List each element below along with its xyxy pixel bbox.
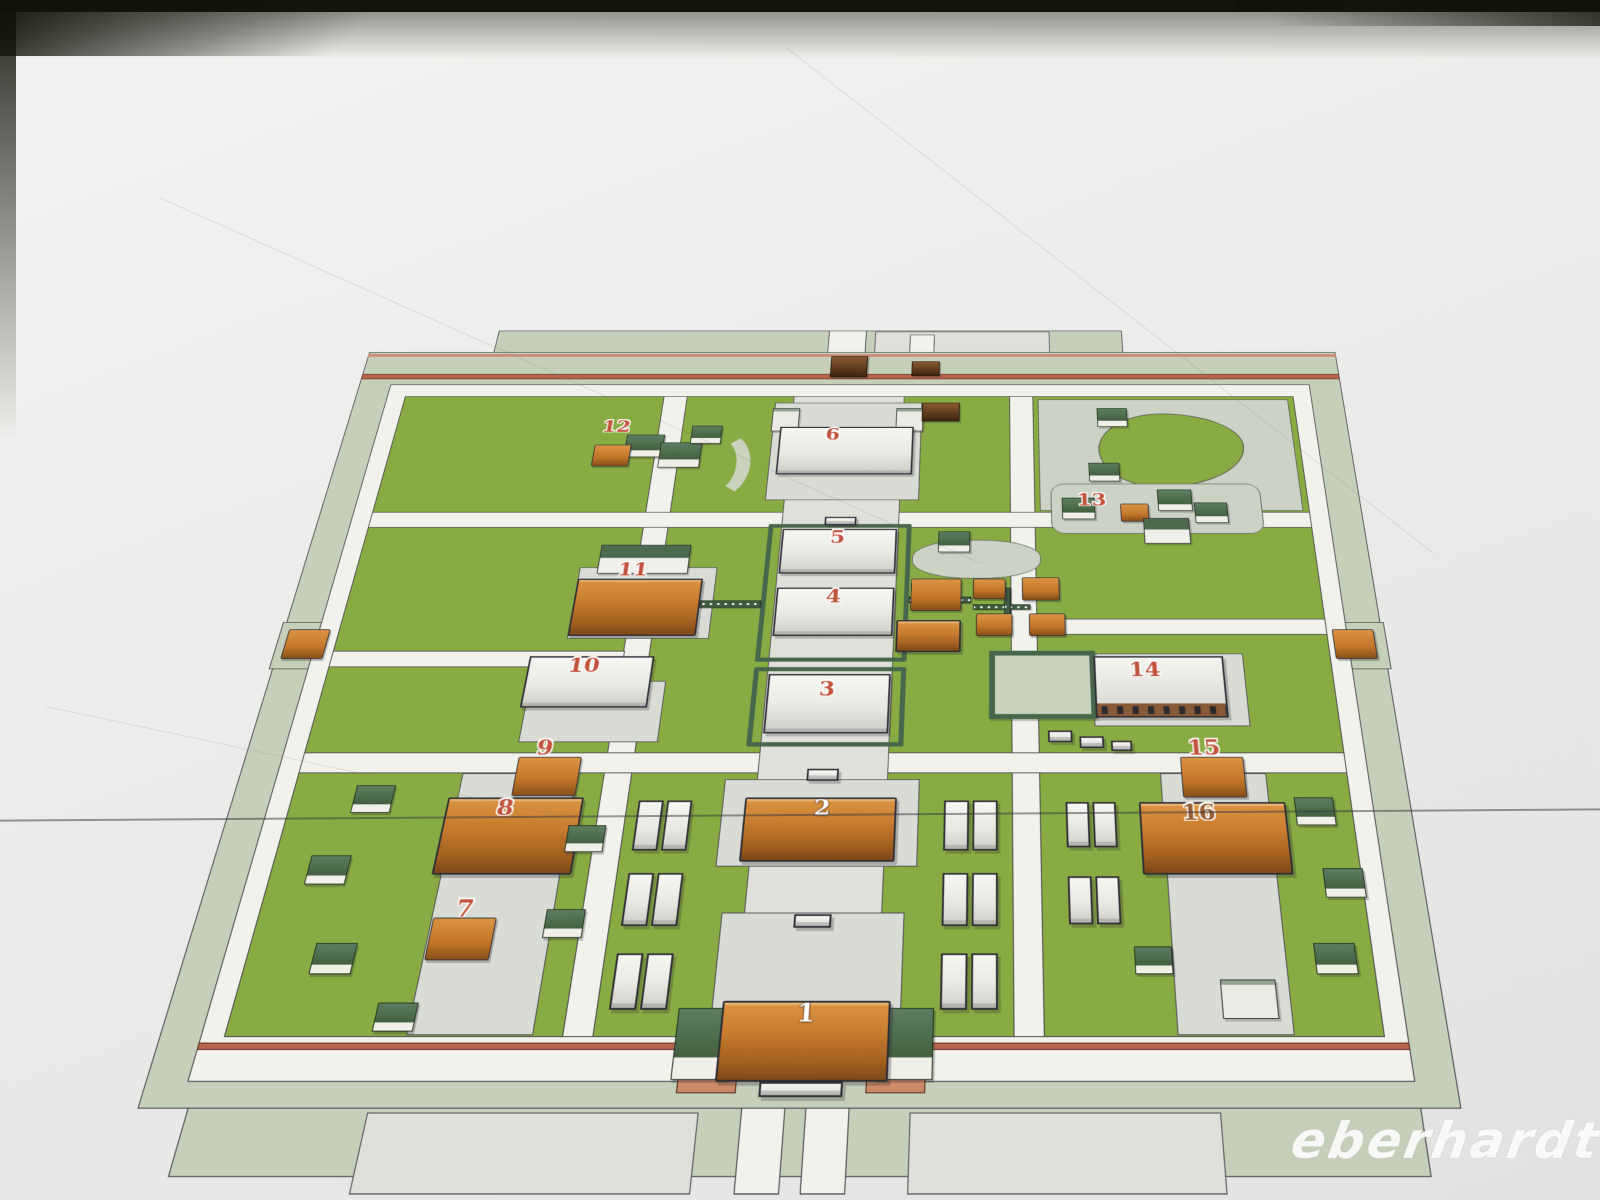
marker-2: 2 [813,796,831,820]
side-hall [942,873,969,926]
side-hall [972,873,998,926]
outer-apron-bottom-left [349,1113,699,1195]
marker-4: 4 [825,587,842,607]
cluster-pavilion-large [910,579,962,611]
approach-path-bottom-right [800,1100,850,1194]
side-hall [972,801,997,851]
side-hall [1068,876,1094,924]
marker-3: 3 [818,679,836,701]
side-hall [943,801,969,851]
marker-14: 14 [1128,659,1161,680]
court13-pavilion [1194,502,1229,522]
west-court-pavilion [372,1003,419,1032]
building-14-hall [1093,656,1228,717]
stream-pavilion [938,531,970,552]
photo-of-map-sign: { "photo": { "watermark": "eberhardt" },… [0,0,1600,1200]
side-hall [1092,802,1117,847]
north-gate-tower-2 [911,361,940,376]
stream-pond [911,540,1041,579]
building-15-pavilion [1180,757,1247,798]
marker-6: 6 [825,426,841,443]
west-court-pavilion [304,855,352,884]
marker-13: 13 [1076,491,1106,509]
building-9-pavilion [511,757,582,796]
marker-11: 11 [616,560,650,580]
side-hall [1095,876,1121,924]
court13-hall [1143,518,1191,544]
east-court-pavilion [1313,943,1359,974]
approach-path-bottom-left [733,1100,786,1194]
east-court-pyramid-hall [1220,980,1280,1019]
outer-apron-bottom-right [907,1113,1227,1195]
walled-enclosure [989,651,1098,719]
court13-pavilion [1088,463,1120,481]
east-court-pavilion [1322,868,1367,897]
cluster-pavilion [1022,577,1060,600]
temple-complex-map: 1 2 3 4 5 6 7 8 9 10 11 12 13 14 15 16 [123,0,1547,1195]
watermark-text: eberhardt [1287,1112,1600,1170]
court12-pavilion-b [657,442,702,467]
cluster-pavilion [976,613,1013,635]
west-court-pavilion [542,909,586,938]
court12-orange-pavilion [591,445,632,467]
marker-10: 10 [566,655,601,676]
gate1-steps [758,1082,843,1097]
marker-1: 1 [796,999,816,1027]
east-court-pavilion [1134,946,1174,974]
pond-pavilion [1097,408,1128,427]
west-court-pavilion [564,825,606,852]
small-outbuilding [1048,731,1073,743]
cluster-pavilion [1029,613,1066,635]
corridor-cluster-1 [973,604,1031,609]
frame-edge-left [0,0,16,440]
north-gate-tower [830,356,868,377]
cluster-pavilion [973,579,1006,600]
side-hall [971,953,998,1009]
small-outbuilding [1079,736,1104,748]
small-outbuilding [1111,741,1132,751]
marker-12: 12 [601,418,633,435]
pavilion-east-of-6 [922,403,960,422]
side-hall [940,953,968,1009]
building-6-hall [775,427,913,475]
west-wall-gate [280,629,331,659]
marker-5: 5 [830,528,846,547]
court13-pavilion [1157,490,1193,511]
east-wall-gate [1332,629,1378,659]
axis-gate-a [824,517,856,525]
building-11-hall [567,579,703,636]
west-court-pavilion [350,785,396,813]
building-7-pavilion [424,918,497,961]
axis-gate-b [806,769,839,781]
side-hall [1066,802,1091,847]
marker-15: 15 [1187,737,1222,760]
axis-gate-c [793,914,831,927]
cluster-hall-orange [895,620,961,652]
west-court-pavilion [308,943,358,974]
path-row-2-east [1037,619,1327,635]
